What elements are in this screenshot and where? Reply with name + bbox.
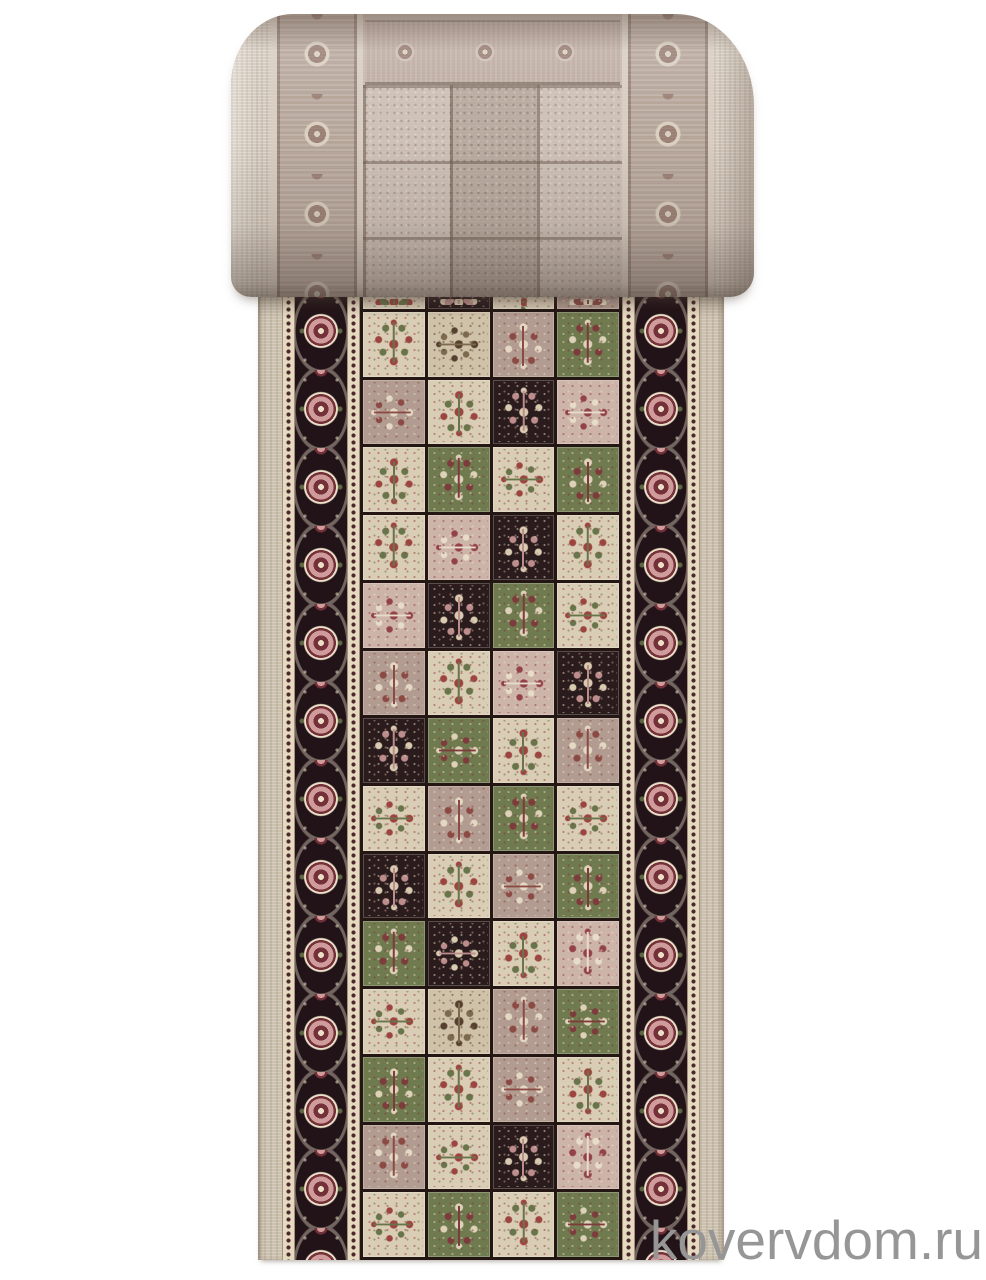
rug-tile <box>493 1125 555 1190</box>
rug-tile <box>428 989 490 1054</box>
rug-tile <box>428 515 490 580</box>
rug-tile <box>557 718 619 783</box>
product-photo: kovervdom.ru <box>0 0 986 1280</box>
rug-tile <box>493 989 555 1054</box>
runner-selvage-left <box>258 292 282 1260</box>
rug-tile <box>493 583 555 648</box>
rug-tile <box>363 718 425 783</box>
rug-tile <box>363 447 425 512</box>
rug-tile <box>557 380 619 445</box>
rug-tile <box>428 921 490 986</box>
rug-tile <box>428 583 490 648</box>
rug-tile <box>363 651 425 716</box>
rug-tile <box>557 312 619 377</box>
rug-roll <box>231 14 754 297</box>
rug-tile <box>428 651 490 716</box>
roll-border-right <box>622 14 714 297</box>
roll-selvage-right <box>714 14 754 297</box>
rug-tile <box>493 651 555 716</box>
rug-tile <box>363 380 425 445</box>
rug-tile <box>363 854 425 919</box>
runner-guard-outer-right <box>687 292 700 1260</box>
rug-tile <box>363 295 425 309</box>
rug-tile <box>428 786 490 851</box>
rug-tile <box>363 786 425 851</box>
runner-border-right <box>635 292 687 1260</box>
rug-tile <box>363 921 425 986</box>
rug-tile <box>493 1192 555 1257</box>
rug-tile <box>363 1057 425 1122</box>
rug-tile <box>363 989 425 1054</box>
rug-tile <box>493 380 555 445</box>
rug-tile <box>557 447 619 512</box>
watermark: kovervdom.ru <box>650 1213 983 1268</box>
roll-panel-grid <box>363 85 622 297</box>
rug-runner <box>258 292 724 1260</box>
runner-selvage-right <box>700 292 724 1260</box>
rug-tile <box>363 583 425 648</box>
roll-top-border <box>365 20 620 85</box>
rug-tile <box>428 718 490 783</box>
rug-tile <box>493 718 555 783</box>
rug-tile <box>493 515 555 580</box>
rug-tile <box>493 1057 555 1122</box>
rug-tile <box>557 515 619 580</box>
rug-tile <box>557 651 619 716</box>
rug-tile <box>557 583 619 648</box>
rug-tile <box>428 1057 490 1122</box>
rug-tile <box>363 1125 425 1190</box>
roll-selvage-left <box>231 14 271 297</box>
roll-border-left <box>271 14 363 297</box>
rug-tile <box>493 786 555 851</box>
rug-tile <box>428 295 490 309</box>
rug-tile <box>428 447 490 512</box>
rug-tile <box>428 312 490 377</box>
rug-tile <box>493 295 555 309</box>
rug-tile <box>557 921 619 986</box>
rug-tile <box>363 1192 425 1257</box>
runner-field <box>360 292 622 1260</box>
roll-field <box>363 14 622 297</box>
rug-tile <box>557 786 619 851</box>
rug-tile <box>557 295 619 309</box>
rug-tile <box>493 921 555 986</box>
rug-tile <box>363 515 425 580</box>
rug-tile <box>557 989 619 1054</box>
rug-tile <box>428 380 490 445</box>
rug-tile <box>493 312 555 377</box>
rug-tile <box>363 312 425 377</box>
rug-tile <box>493 447 555 512</box>
runner-guard-inner-right <box>622 292 635 1260</box>
runner-border-left <box>295 292 347 1260</box>
runner-guard-inner-left <box>347 292 360 1260</box>
rug-tile <box>493 854 555 919</box>
rug-tile <box>557 1125 619 1190</box>
rug-tile <box>557 1057 619 1122</box>
rug-tile <box>428 854 490 919</box>
runner-guard-outer-left <box>282 292 295 1260</box>
rug-tile <box>428 1125 490 1190</box>
rug-tile <box>557 854 619 919</box>
rug-tile <box>557 1192 619 1257</box>
rug-tile <box>428 1192 490 1257</box>
